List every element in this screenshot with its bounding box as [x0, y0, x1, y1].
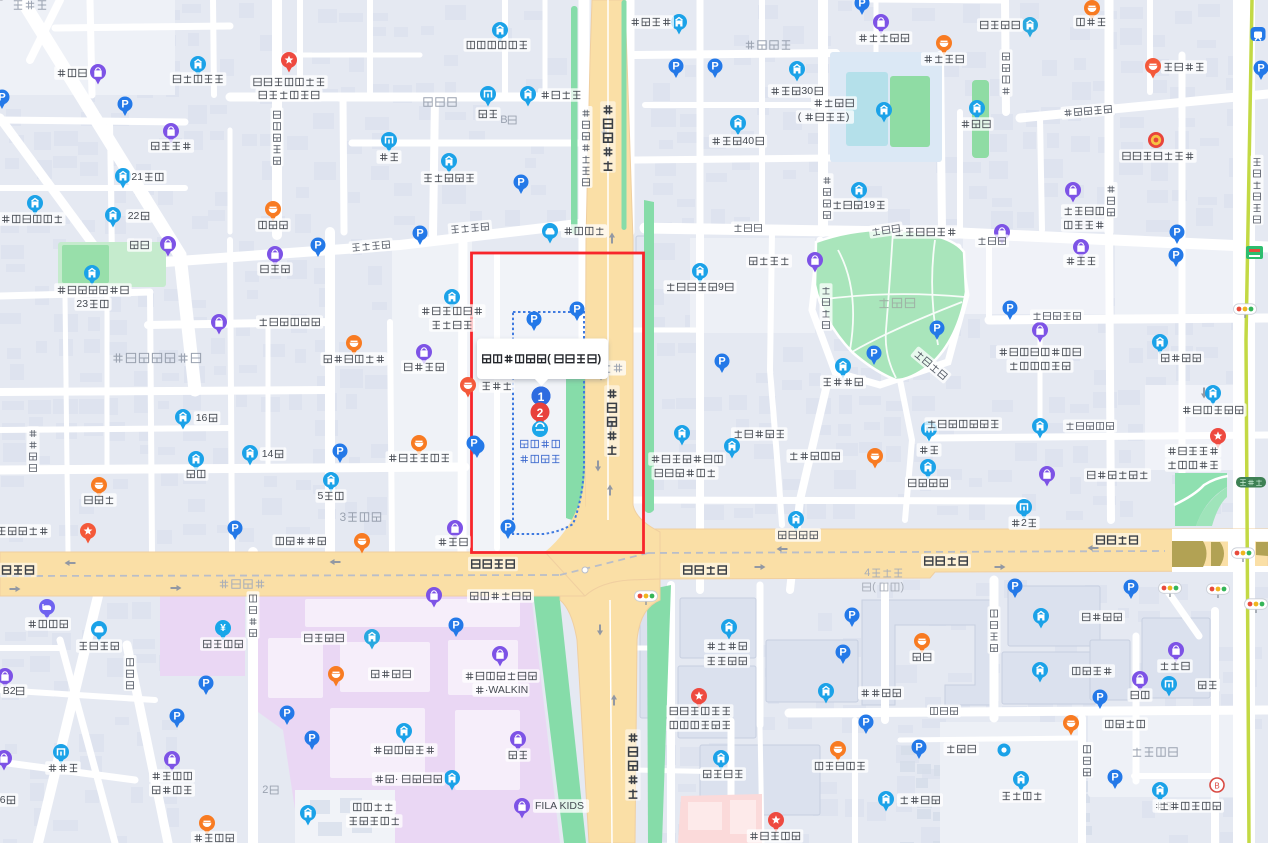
svg-text:P: P	[711, 61, 718, 73]
svg-text:P: P	[173, 711, 180, 723]
svg-text:2: 2	[1021, 517, 1027, 529]
svg-text:P: P	[121, 99, 128, 111]
svg-text:P: P	[915, 742, 922, 754]
svg-text:P: P	[416, 228, 423, 240]
svg-text:P: P	[718, 356, 725, 368]
svg-text:P: P	[672, 61, 679, 73]
svg-text:): )	[901, 581, 905, 593]
svg-text:P: P	[314, 240, 321, 252]
svg-text:P: P	[530, 314, 537, 326]
svg-text:): )	[846, 111, 850, 123]
svg-text:(: (	[798, 111, 802, 123]
svg-text:P: P	[283, 708, 290, 720]
svg-text:B2: B2	[3, 685, 16, 697]
svg-text:P: P	[1172, 250, 1179, 262]
svg-text:5: 5	[318, 490, 324, 502]
svg-text:1: 1	[538, 390, 545, 404]
svg-text:P: P	[504, 522, 511, 534]
svg-text:(: (	[547, 353, 551, 365]
svg-text:P: P	[336, 446, 343, 458]
svg-text:P: P	[308, 733, 315, 745]
svg-text:P: P	[848, 610, 855, 622]
svg-text:P: P	[870, 348, 877, 360]
svg-text:P: P	[517, 177, 524, 189]
svg-text:40: 40	[742, 135, 754, 147]
svg-text:P: P	[573, 304, 580, 316]
svg-text:P: P	[202, 678, 209, 690]
svg-text:16: 16	[196, 412, 208, 424]
svg-text:23: 23	[76, 298, 88, 310]
svg-text:P: P	[1096, 692, 1103, 704]
svg-text:P: P	[1257, 63, 1264, 75]
svg-text:14: 14	[262, 448, 274, 460]
svg-text:P: P	[1173, 227, 1180, 239]
svg-text:P: P	[0, 92, 6, 104]
svg-text:P: P	[933, 323, 940, 335]
svg-text:P: P	[452, 620, 459, 632]
svg-text:B: B	[500, 114, 507, 126]
svg-text:P: P	[1111, 772, 1118, 784]
svg-text:4: 4	[864, 567, 870, 579]
svg-text:P: P	[858, 0, 865, 10]
svg-text:P: P	[231, 523, 238, 535]
svg-text:·: ·	[395, 773, 399, 785]
svg-text:2: 2	[537, 406, 544, 420]
svg-text:21: 21	[131, 171, 143, 183]
svg-text:3: 3	[340, 510, 347, 524]
svg-text:2: 2	[262, 784, 268, 796]
svg-text:FILA KIDS: FILA KIDS	[535, 800, 584, 812]
svg-text:22: 22	[128, 210, 140, 222]
svg-text:9: 9	[718, 281, 724, 293]
svg-text:P: P	[1127, 582, 1134, 594]
svg-text:P: P	[470, 438, 477, 450]
svg-text:¥: ¥	[220, 623, 226, 634]
svg-text:): )	[598, 353, 602, 365]
svg-text:30: 30	[801, 85, 813, 97]
svg-text:B: B	[1214, 782, 1219, 791]
svg-text:P: P	[1011, 581, 1018, 593]
svg-text:P: P	[1006, 303, 1013, 315]
svg-text:P: P	[839, 647, 846, 659]
svg-text:6: 6	[0, 794, 6, 806]
svg-text:·WALKIN: ·WALKIN	[485, 684, 528, 696]
svg-text:(: (	[872, 581, 876, 593]
svg-text:P: P	[862, 717, 869, 729]
svg-text:19: 19	[863, 199, 875, 211]
